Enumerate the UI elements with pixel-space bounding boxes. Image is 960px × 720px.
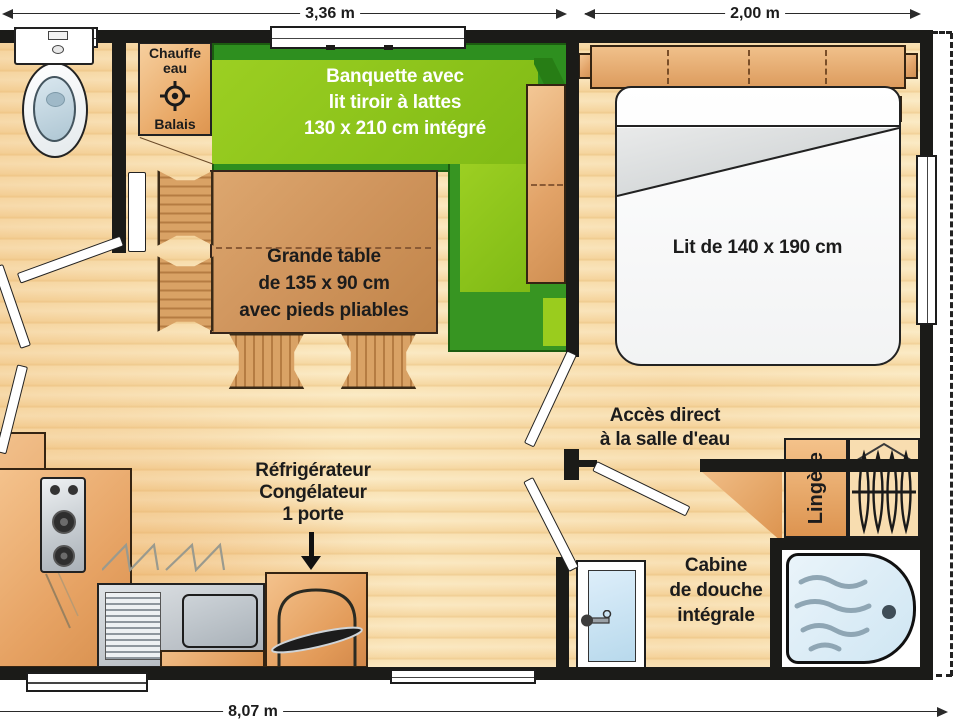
kitchen-window [26,672,148,692]
dimension-arrow-right [556,9,567,19]
banquette-label-line1: Banquette avec [225,64,565,90]
table-label: Grande table de 135 x 90 cm avec pieds p… [213,243,435,324]
fridge-door-arc [267,574,366,666]
fridge [265,572,368,668]
headboard-joint-line [748,50,750,84]
headboard-joint-line [667,50,669,84]
wardrobe [848,438,920,538]
wall-top [0,30,933,43]
fridge-label-line1: Réfrigérateur [233,460,393,482]
dashed-boundary-top [932,31,952,34]
dimension-arrow-left [2,9,13,19]
shelf-fold-line [531,184,563,186]
shower-cabin [782,550,920,668]
gas-hob [40,477,86,573]
folding-flap-zigzag [102,542,242,572]
bed-label: Lit de 140 x 190 cm [620,236,895,260]
banquette-label-line2: lit tiroir à lattes [225,90,565,116]
shower-tray [786,553,916,664]
bathroom-access-line2: à la salle d'eau [575,428,755,452]
closet-label-line3: Balais [154,116,195,132]
shower-label-line1: Cabine [640,553,792,578]
bathroom-access-label: Accès direct à la salle d'eau [575,404,755,452]
stool [228,333,305,389]
dashed-boundary-right [950,33,953,676]
wardrobe-hangers [850,440,918,536]
washbasin-unit [576,560,646,672]
table-label-line3: avec pieds pliables [213,297,435,324]
heater-crosshair-icon [159,80,191,112]
wall-basin-left [556,557,569,668]
washbasin-tap-icon [579,610,613,632]
sink-cabinet-front [160,650,265,668]
shower-water-lines [789,556,913,661]
wall-living-bedroom [566,30,579,357]
dimension-arrow-right [910,9,921,19]
stool [158,170,214,247]
linen-cabinet: Lingère [784,438,848,538]
toilet-bowl [22,62,88,158]
closet-label-line2: eau [149,61,201,76]
dimension-label-living: 3,36 m [300,5,360,23]
dimension-line-total [0,711,946,712]
bathroom-access-line1: Accès direct [575,404,755,428]
shower-label: Cabine de douche intégrale [640,553,792,628]
headboard-joint-line [825,50,827,84]
sink-bowl [182,594,258,648]
fridge-label: Réfrigérateur Congélateur 1 porte [233,460,393,526]
toilet-bowl-inner [33,76,76,142]
table-label-line2: de 135 x 90 cm [213,270,435,297]
dimension-arrow-right [937,707,948,717]
fridge-arrow-head [301,556,321,570]
toilet-tank-button [48,31,68,40]
wc-door-closed [128,172,146,252]
window-tick [384,45,393,50]
toilet-drain [46,92,65,107]
banquette-label-line3: 130 x 210 cm intégré [225,116,565,142]
fridge-arrow-stem [309,532,314,556]
banquette-seat-corner [543,298,567,346]
banquette-seat-right [460,164,530,292]
counter-fold-lines [42,572,82,632]
dimension-line-living [6,13,560,14]
bedroom-window [916,155,937,325]
wall-bedroom-bathroom [700,459,922,472]
dimension-label-total: 8,07 m [223,703,283,720]
banquette-label: Banquette avec lit tiroir à lattes 130 x… [225,64,565,142]
wall-shower-top [770,538,922,550]
window-tick [326,45,335,50]
toilet-flush-hole [52,45,64,54]
fridge-label-line2: Congélateur [233,482,393,504]
shower-label-line3: intégrale [640,603,792,628]
wall-stub-bathroom-door [564,449,579,480]
fridge-label-line3: 1 porte [233,504,393,526]
bed [615,86,901,366]
hob-burners [42,479,88,575]
sink-drainer [105,592,161,660]
utility-closet: Chauffe eau Balais [138,42,212,136]
bed-duvet-fold [617,88,899,364]
bed-headboard [590,45,906,89]
table-label-line1: Grande table [213,243,435,270]
dimension-label-bedroom: 2,00 m [725,5,785,23]
stool [340,333,417,389]
closet-label-line1: Chauffe [149,46,201,61]
entrance-door [390,669,536,684]
dimension-arrow-left [584,9,595,19]
shower-label-line2: de douche [640,578,792,603]
toilet-tank [14,27,94,65]
mobile-home-floor-plan: Banquette avec lit tiroir à lattes 130 x… [0,0,960,720]
living-window [270,26,466,49]
stool [158,256,214,333]
wall-right [920,30,933,680]
wall-wc [112,30,126,253]
